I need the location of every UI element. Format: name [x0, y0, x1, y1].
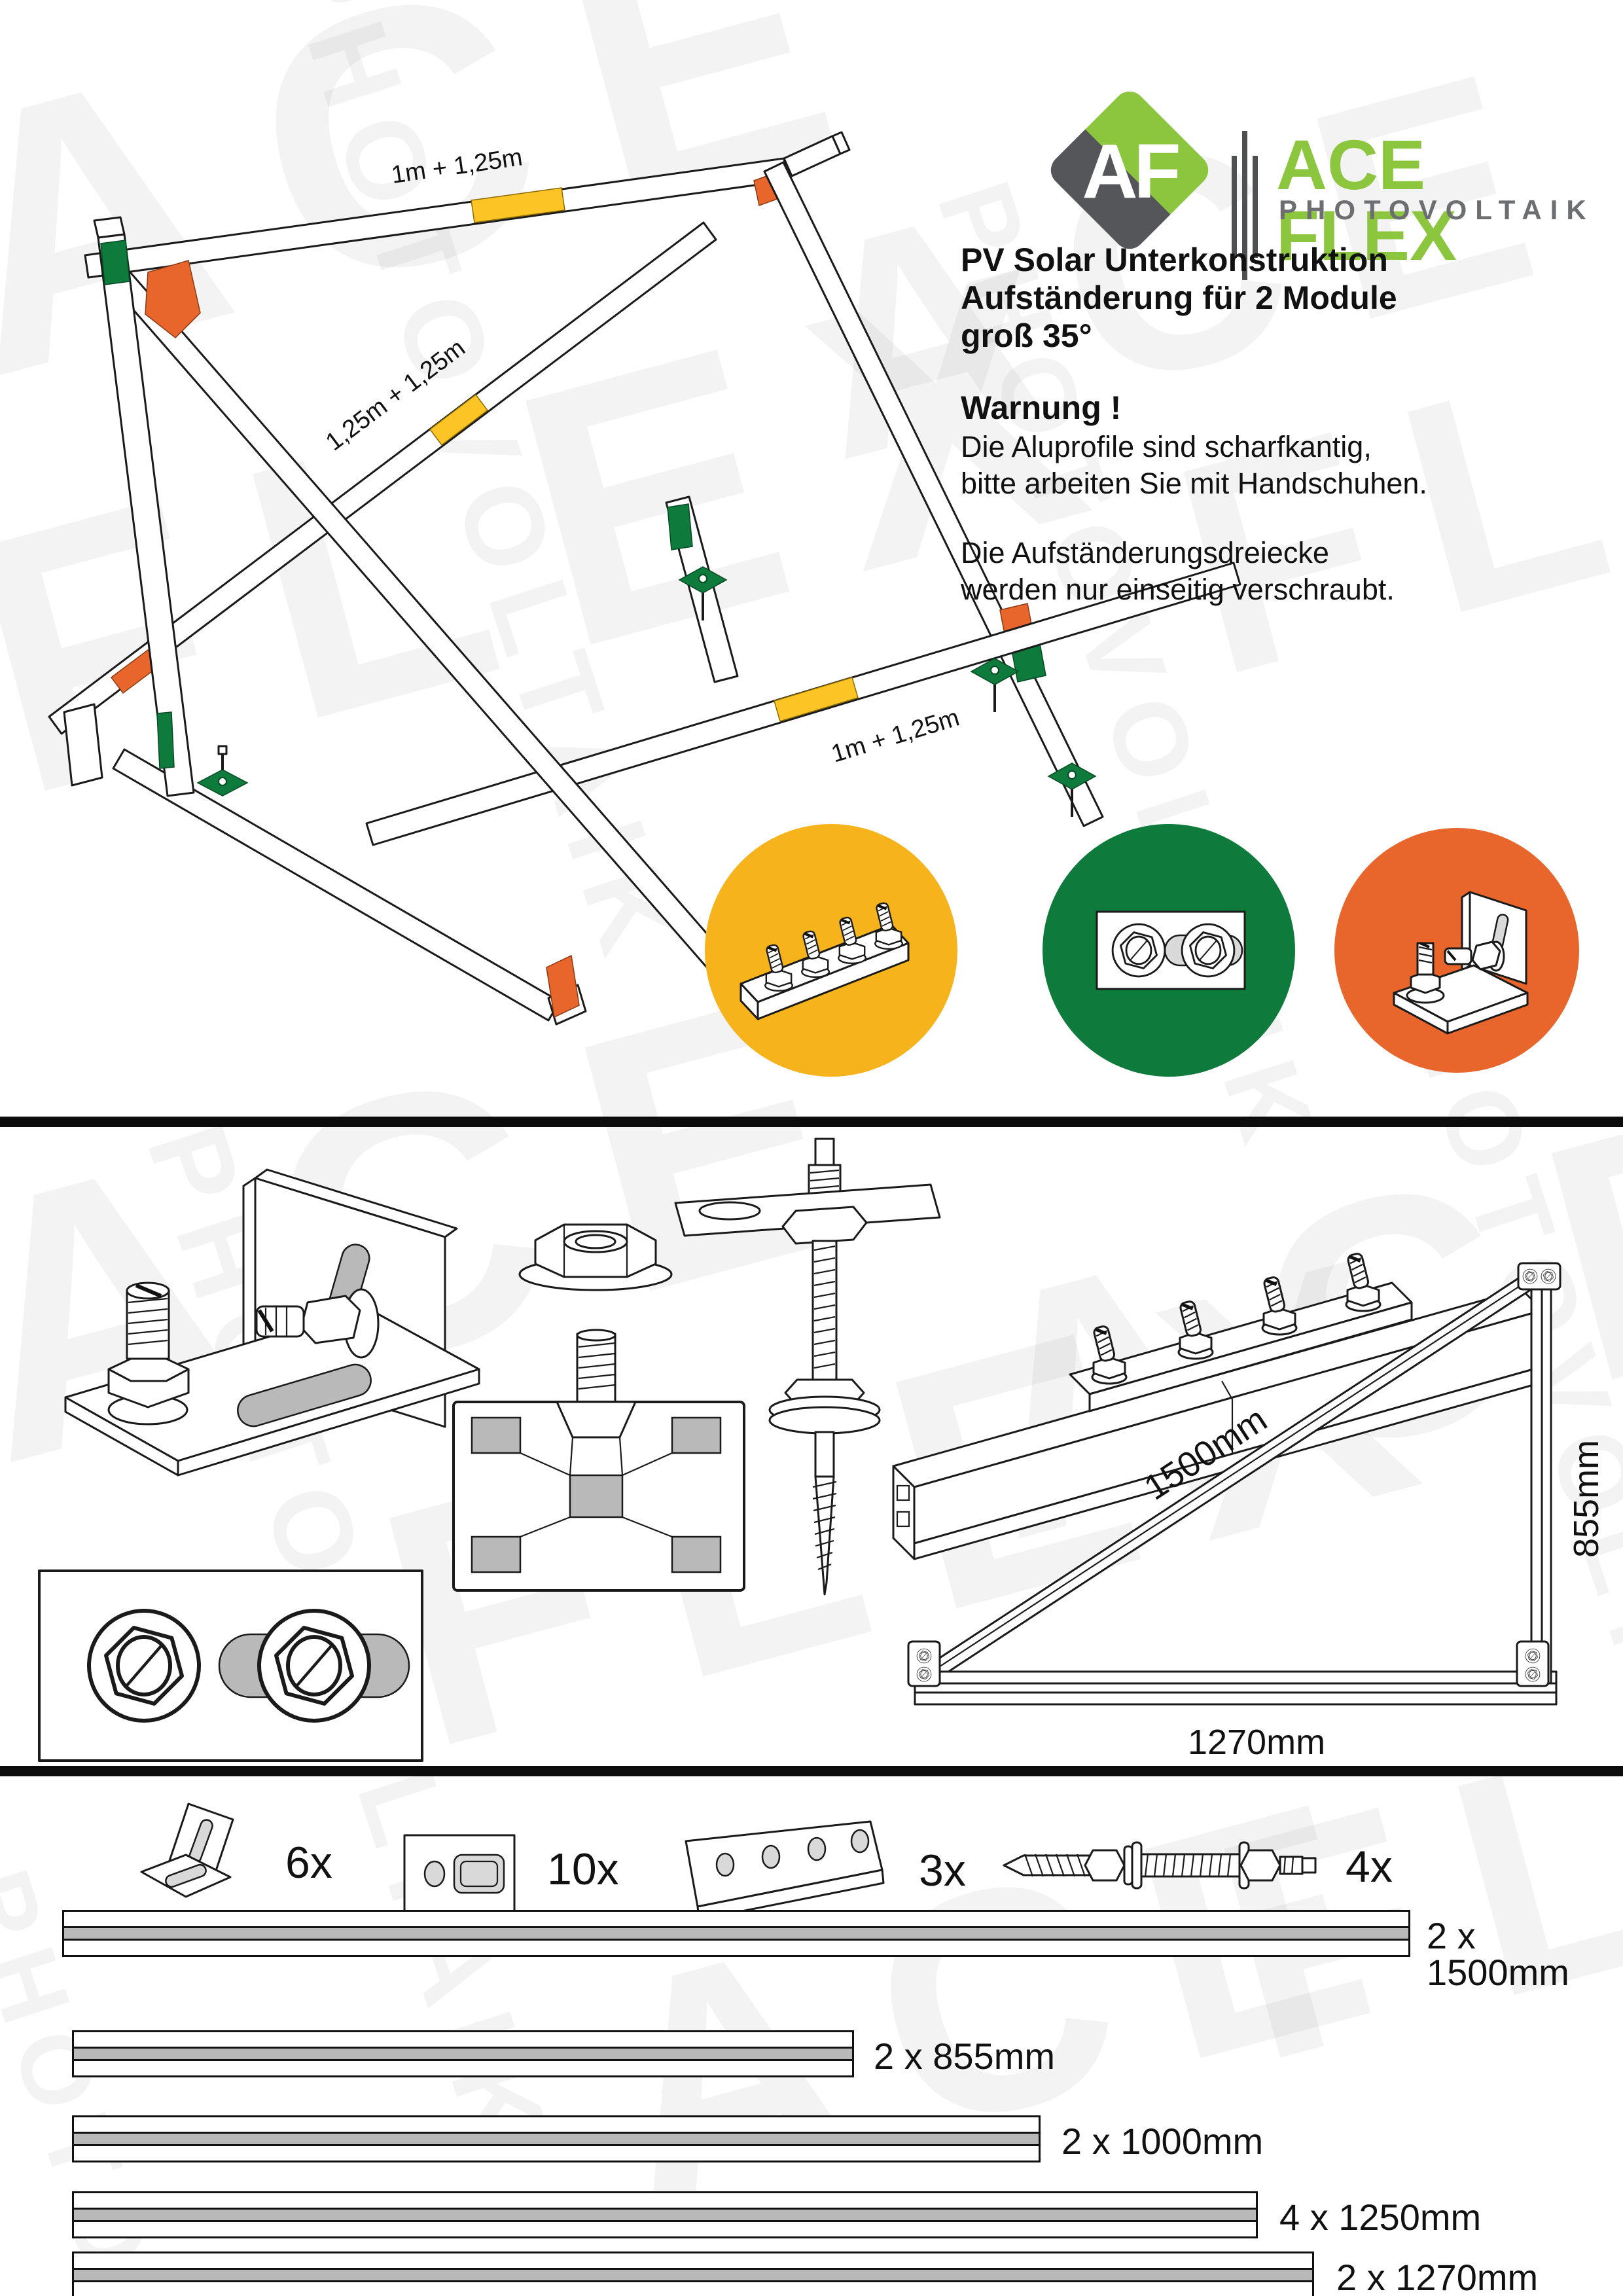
brand-logo: AF [1046, 72, 1242, 268]
page-title-line1: PV Solar Unterkonstruktion [961, 243, 1388, 276]
profile-bar-1270 [72, 2251, 1314, 2296]
profile-bar-label: 2 x 855mm [874, 2038, 1055, 2075]
bar-face [72, 2220, 1258, 2238]
part-qty-angle-bracket: 6x [285, 1840, 332, 1885]
brand-subtitle: PHOTOVOLTAIK [1279, 196, 1595, 224]
frame-back-post [666, 497, 738, 682]
instruction-sheet: ACE FLEX PHOTOVOLTAIK ACE PHOTOVOLTAIK F… [0, 0, 1623, 2296]
profile-bar-label: 2 x 1000mm [1061, 2123, 1263, 2160]
part-qty-connector-strip: 3x [919, 1848, 966, 1893]
section-divider-bottom [0, 1766, 1623, 1776]
profile-bar-label: 4 x 1250mm [1279, 2199, 1481, 2236]
part-qty-hanger-bolt: 4x [1346, 1844, 1393, 1889]
bar-face [72, 2251, 1314, 2270]
warning-body-line2: bitte arbeiten Sie mit Handschuhen. [961, 469, 1427, 498]
l-bracket-drawing [26, 1139, 497, 1518]
green-marker [668, 504, 692, 550]
bar-face [72, 2115, 1041, 2134]
profile-bar-1250 [72, 2191, 1258, 2238]
profile-bar-1500 [62, 1910, 1410, 1957]
bar-face [72, 2280, 1314, 2296]
warning-body-line4: werden nur einseitig verschraubt. [961, 575, 1395, 604]
part-icon-hanger-bolt [995, 1829, 1322, 1901]
badge-green-plate-drawing [1097, 912, 1245, 989]
page-title-line2: Aufständerung für 2 Module [961, 281, 1397, 314]
triangle-height-label: 855mm [1567, 1440, 1606, 1558]
page-title-line3: groß 35° [961, 319, 1092, 352]
warning-body-line1: Die Aluprofile sind scharfkantig, [961, 432, 1372, 461]
warning-body-line3: Die Aufständerungsdreiecke [961, 538, 1329, 567]
profile-bar-label: 2 x 1500mm [1427, 1918, 1623, 1991]
logo-monogram: AF [1082, 128, 1178, 215]
dimension-label-top-rail: 1m + 1,25m [389, 143, 524, 189]
bar-face [72, 2191, 1258, 2210]
triangle-dimension-drawing: 1500mm 855mm 1270mm [890, 1237, 1623, 1767]
profile-bar-1000 [72, 2115, 1041, 2162]
bar-face [72, 2144, 1041, 2162]
yellow-marker [774, 677, 858, 721]
bar-face [72, 2030, 854, 2049]
bar-face [62, 1910, 1410, 1928]
slot-plate-drawing [36, 1568, 429, 1764]
profile-bar-label: 2 x 1270mm [1336, 2259, 1538, 2296]
green-mount-plate [198, 746, 247, 796]
triangle-base-label: 1270mm [1188, 1723, 1325, 1762]
bar-face [72, 2059, 854, 2077]
part-icon-slot-plate [401, 1831, 518, 1916]
green-marker [157, 712, 174, 768]
bar-face [62, 1939, 1410, 1957]
dimension-label-bottom-rail: 1m + 1,25m [829, 704, 963, 768]
warning-title: Warnung ! [961, 391, 1121, 424]
detail-badges [681, 815, 1597, 1090]
yellow-marker [430, 395, 488, 445]
section-divider-top [0, 1117, 1623, 1127]
part-qty-slot-plate: 10x [547, 1847, 619, 1892]
flange-nut-drawing [510, 1214, 681, 1299]
green-marker [101, 240, 130, 285]
profile-bar-855 [72, 2030, 854, 2077]
